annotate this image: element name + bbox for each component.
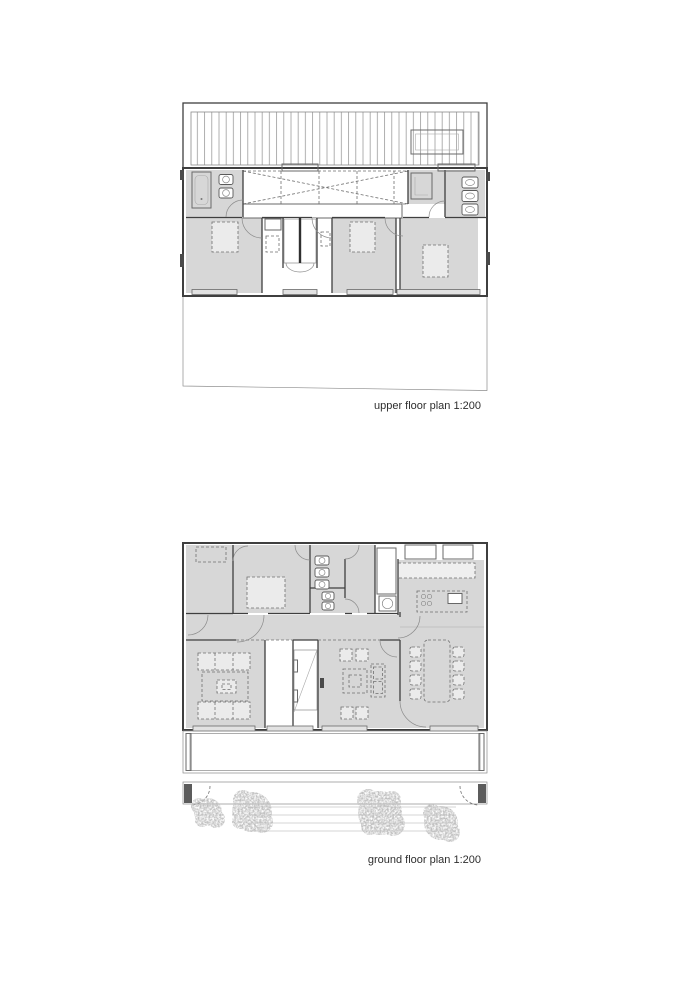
tree-icon <box>423 804 460 842</box>
closet-icon <box>321 232 330 246</box>
garden-wall <box>183 782 487 805</box>
upper-plan-caption: upper floor plan 1:200 <box>374 400 481 412</box>
toilet-icon <box>322 592 334 600</box>
washbasin-icon <box>315 568 329 577</box>
washing-machine-icon <box>379 596 396 611</box>
bathroom-left <box>186 170 243 217</box>
floor-plans-drawing: upper floor plan 1:200 <box>0 0 700 990</box>
wardrobe-corridor <box>243 171 408 218</box>
bidet-icon <box>219 188 233 198</box>
site-outline <box>183 296 487 391</box>
toilet-icon <box>462 204 478 215</box>
toilet-icon <box>219 175 233 185</box>
bed-icon <box>350 222 375 252</box>
tree-icon <box>191 798 225 828</box>
ground-floor-plan: ground floor plan 1:200 <box>183 543 487 866</box>
sofa-icon <box>198 653 250 670</box>
bed-icon <box>212 222 238 252</box>
skylight-icon <box>443 545 473 559</box>
drawing-sheet: upper floor plan 1:200 <box>0 0 700 990</box>
closet-icon <box>266 236 279 252</box>
tree-icon <box>232 790 273 833</box>
armchair-icon <box>356 707 368 719</box>
window-sill <box>347 290 393 295</box>
sink-icon <box>448 594 462 604</box>
terrace <box>183 731 487 773</box>
window-sill <box>430 726 478 731</box>
kitchen-counter <box>398 563 475 578</box>
desk-icon <box>247 577 285 608</box>
sofa-icon <box>198 702 250 719</box>
window-sill <box>192 290 237 295</box>
bed-icon <box>423 245 448 277</box>
window-sill <box>322 726 367 731</box>
entry-room <box>186 545 233 615</box>
hallway <box>186 615 400 640</box>
window-sill <box>397 290 480 295</box>
window-sill <box>193 726 255 731</box>
upper-main-floor <box>180 164 490 296</box>
shower-room-ground <box>345 545 375 613</box>
ground-plan-caption: ground floor plan 1:200 <box>368 854 481 866</box>
tree-icon <box>357 789 405 836</box>
armchair-icon <box>340 649 352 661</box>
window-sill <box>267 726 313 731</box>
roof-deck <box>183 103 487 168</box>
armchair-icon <box>356 649 368 661</box>
upper-floor-plan: upper floor plan 1:200 <box>180 103 490 412</box>
tv-icon <box>320 678 324 688</box>
stairs-ground <box>294 648 318 712</box>
washbasin-icon <box>462 191 478 202</box>
washbasin-icon <box>315 580 329 589</box>
washbasin-icon <box>315 556 329 565</box>
washbasin-icon <box>462 177 478 188</box>
window-sill <box>283 290 317 295</box>
closet-icon <box>265 219 281 230</box>
toilet-icon <box>322 602 334 610</box>
pantry-shelves <box>377 548 396 611</box>
stairs-upper <box>284 218 316 272</box>
skylight-icon <box>405 545 436 559</box>
coffee-table-icon <box>217 680 236 693</box>
armchair-icon <box>341 707 353 719</box>
